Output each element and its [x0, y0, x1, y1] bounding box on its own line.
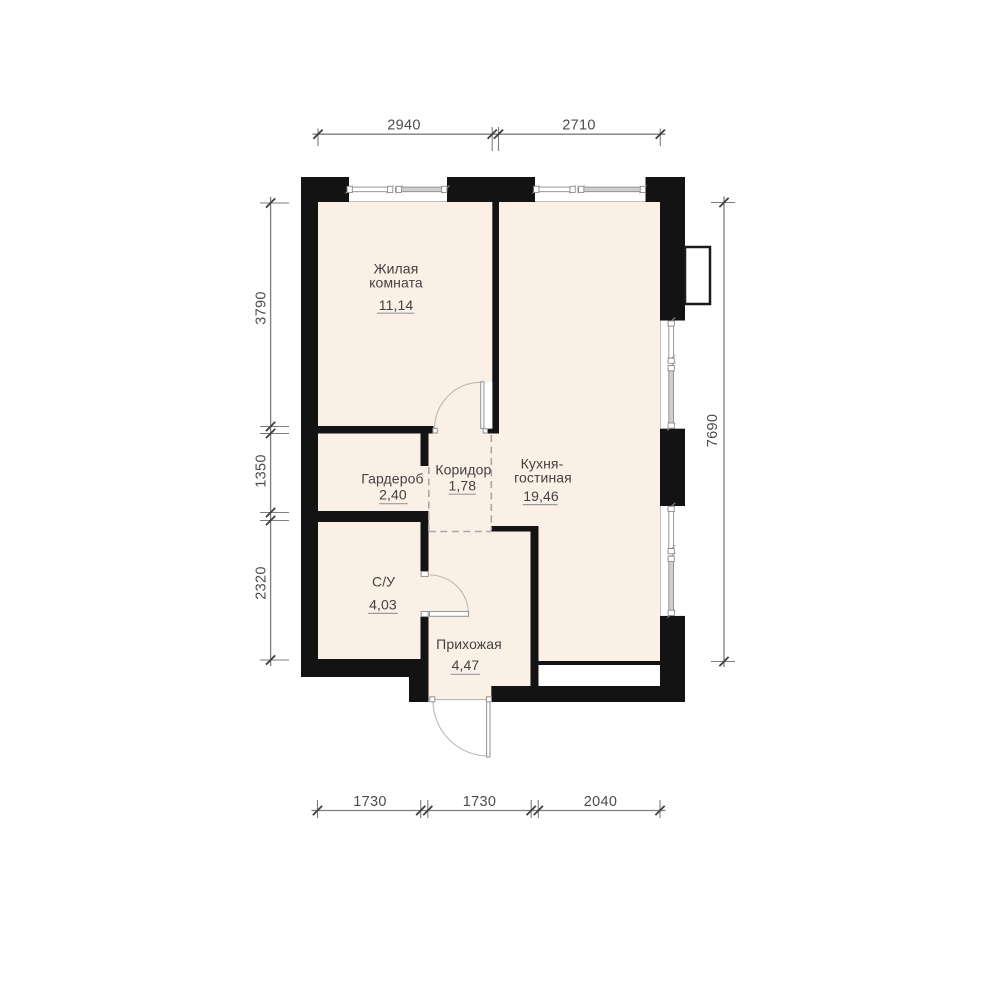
svg-text:С/У: С/У: [372, 574, 395, 590]
svg-text:Прихожая: Прихожая: [436, 636, 502, 652]
svg-text:Гардероб: Гардероб: [361, 470, 423, 486]
svg-text:4,47: 4,47: [452, 657, 480, 673]
svg-text:2320: 2320: [254, 566, 270, 599]
svg-text:2710: 2710: [562, 118, 595, 134]
svg-text:4,03: 4,03: [369, 597, 397, 613]
svg-text:11,14: 11,14: [379, 297, 414, 313]
svg-text:7690: 7690: [705, 414, 721, 447]
svg-text:1,78: 1,78: [448, 478, 476, 494]
svg-text:Коридор: Коридор: [435, 461, 491, 477]
svg-text:гостиная: гостиная: [514, 470, 572, 486]
svg-text:комната: комната: [369, 275, 423, 291]
svg-text:2940: 2940: [387, 118, 420, 134]
svg-text:1730: 1730: [463, 794, 496, 810]
svg-text:1350: 1350: [254, 454, 270, 487]
svg-text:1730: 1730: [353, 794, 386, 810]
svg-text:2040: 2040: [584, 794, 617, 810]
svg-text:2,40: 2,40: [379, 487, 407, 503]
svg-text:3790: 3790: [254, 291, 270, 324]
svg-text:19,46: 19,46: [523, 488, 559, 504]
